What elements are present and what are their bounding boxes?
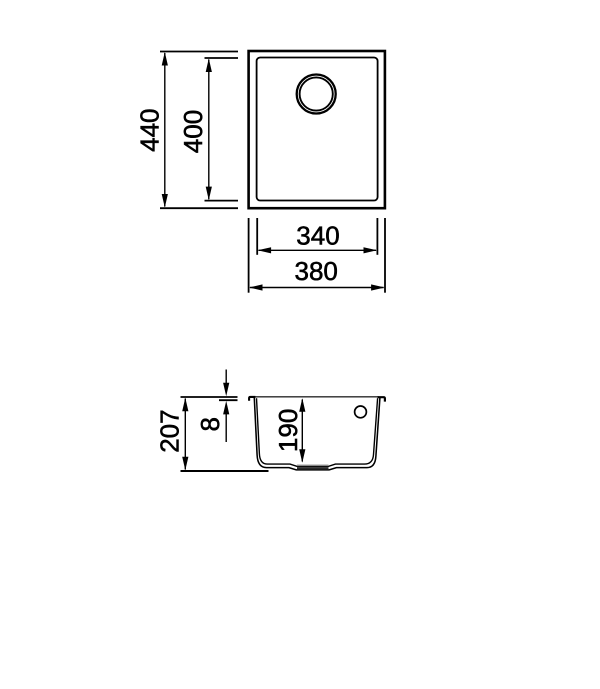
svg-text:8: 8 bbox=[195, 417, 225, 431]
svg-text:340: 340 bbox=[296, 220, 339, 250]
svg-text:440: 440 bbox=[135, 109, 165, 152]
svg-text:380: 380 bbox=[295, 256, 338, 286]
svg-text:207: 207 bbox=[155, 409, 185, 452]
svg-text:190: 190 bbox=[273, 409, 303, 452]
svg-text:400: 400 bbox=[178, 110, 208, 153]
